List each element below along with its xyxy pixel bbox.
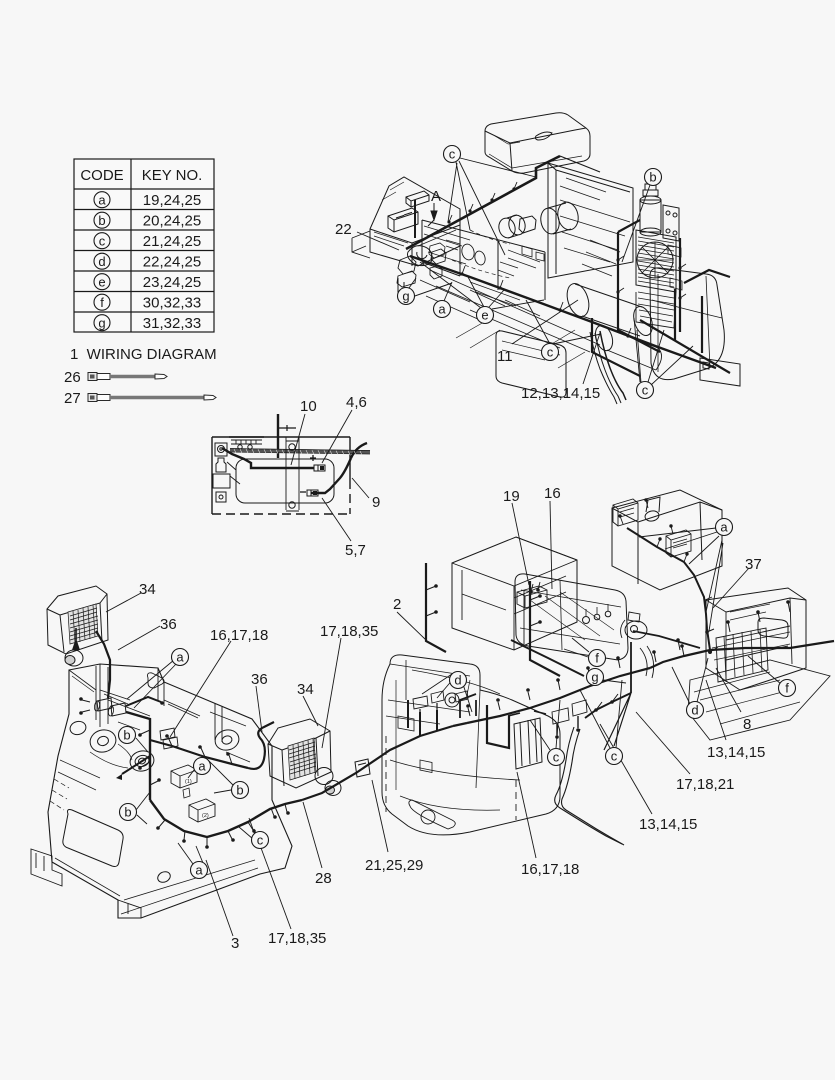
svg-text:b: b — [649, 170, 656, 185]
svg-text:g: g — [591, 670, 598, 685]
svg-text:20,24,25: 20,24,25 — [143, 213, 201, 230]
svg-text:16,17,18: 16,17,18 — [521, 861, 579, 878]
svg-text:a: a — [438, 302, 446, 317]
svg-text:23,24,25: 23,24,25 — [143, 274, 201, 291]
svg-text:c: c — [99, 233, 106, 248]
svg-text:c: c — [449, 147, 456, 162]
svg-text:36: 36 — [160, 616, 177, 633]
svg-text:b: b — [98, 213, 105, 228]
svg-text:11: 11 — [497, 348, 513, 365]
svg-text:1 WIRING DIAGRAM: 1 WIRING DIAGRAM — [70, 346, 217, 363]
svg-text:f: f — [100, 295, 104, 310]
svg-text:16: 16 — [544, 485, 561, 502]
svg-text:KEY NO.: KEY NO. — [142, 167, 203, 184]
svg-text:d: d — [98, 254, 105, 269]
svg-text:2: 2 — [393, 596, 401, 613]
svg-text:b: b — [236, 783, 243, 798]
svg-text:c: c — [611, 749, 618, 764]
svg-text:a: a — [176, 650, 184, 665]
svg-text:36: 36 — [251, 671, 268, 688]
svg-text:d: d — [454, 673, 461, 688]
svg-text:5,7: 5,7 — [345, 542, 366, 559]
svg-text:12,13,14,15: 12,13,14,15 — [521, 385, 600, 402]
svg-text:c: c — [553, 750, 560, 765]
svg-text:17,18,21: 17,18,21 — [676, 776, 734, 793]
svg-text:g: g — [402, 289, 409, 304]
svg-text:13,14,15: 13,14,15 — [639, 816, 697, 833]
svg-text:c: c — [547, 345, 554, 360]
svg-text:a: a — [98, 192, 106, 207]
svg-text:c: c — [642, 383, 649, 398]
svg-text:b: b — [124, 805, 131, 820]
svg-text:34: 34 — [139, 581, 156, 598]
svg-text:f: f — [595, 651, 599, 666]
svg-text:26: 26 — [64, 369, 81, 386]
svg-text:13,14,15: 13,14,15 — [707, 744, 765, 761]
svg-text:21,24,25: 21,24,25 — [143, 233, 201, 250]
svg-text:CODE: CODE — [80, 167, 123, 184]
svg-text:a: a — [195, 863, 203, 878]
svg-text:g: g — [98, 315, 105, 330]
svg-text:(1): (1) — [185, 779, 192, 785]
svg-text:34: 34 — [297, 681, 314, 698]
svg-text:c: c — [257, 833, 264, 848]
svg-text:17,18,35: 17,18,35 — [320, 623, 378, 640]
svg-text:22,24,25: 22,24,25 — [143, 254, 201, 271]
svg-text:31,32,33: 31,32,33 — [143, 315, 201, 332]
svg-text:19,24,25: 19,24,25 — [143, 192, 201, 209]
svg-text:f: f — [785, 681, 789, 696]
svg-text:30,32,33: 30,32,33 — [143, 295, 201, 312]
svg-text:4,6: 4,6 — [346, 394, 367, 411]
svg-text:b: b — [123, 728, 130, 743]
svg-text:e: e — [98, 274, 105, 289]
svg-text:17,18,35: 17,18,35 — [268, 930, 326, 947]
svg-text:A: A — [431, 188, 441, 205]
svg-text:d: d — [691, 703, 698, 718]
svg-text:8: 8 — [743, 716, 751, 733]
svg-text:21,25,29: 21,25,29 — [365, 857, 423, 874]
svg-text:19: 19 — [503, 488, 520, 505]
svg-text:28: 28 — [315, 870, 332, 887]
svg-text:3: 3 — [231, 935, 239, 952]
svg-text:37: 37 — [745, 556, 762, 573]
svg-text:(2): (2) — [202, 813, 209, 819]
svg-text:16,17,18: 16,17,18 — [210, 627, 268, 644]
svg-text:e: e — [481, 308, 488, 323]
svg-text:10: 10 — [300, 398, 317, 415]
svg-text:a: a — [720, 520, 728, 535]
svg-text:9: 9 — [372, 494, 380, 511]
svg-text:a: a — [198, 759, 206, 774]
svg-text:27: 27 — [64, 390, 81, 407]
svg-text:22: 22 — [335, 221, 352, 238]
